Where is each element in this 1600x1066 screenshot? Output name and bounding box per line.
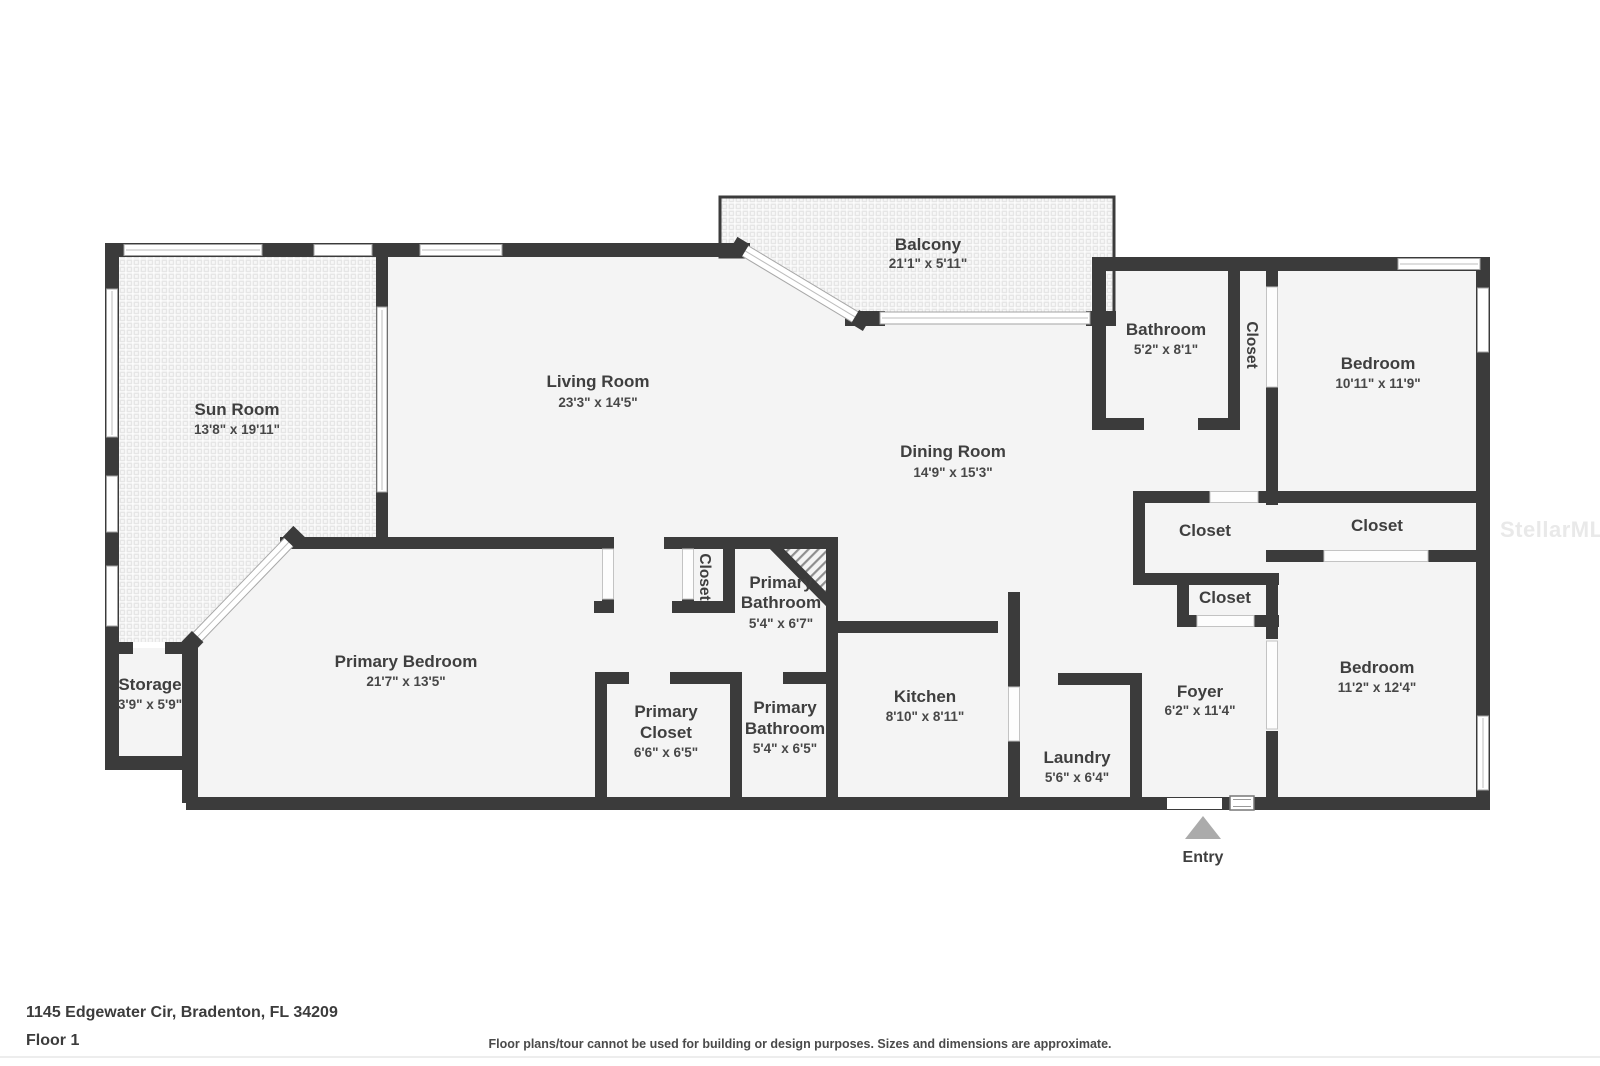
room-label-primary-bedroom: Primary Bedroom bbox=[335, 652, 478, 671]
room-dims-sun-room: 13'8" x 19'11" bbox=[194, 422, 280, 437]
room-label-primary-closet-line1: Primary bbox=[634, 702, 698, 721]
room-dims-bedroom-bottom: 11'2" x 12'4" bbox=[1338, 680, 1417, 695]
room-label-sun-room: Sun Room bbox=[195, 400, 280, 419]
room-label-closet-primary-hall: Closet bbox=[696, 553, 713, 600]
room-label-bedroom-bottom: Bedroom bbox=[1340, 658, 1415, 677]
room-label-bathroom: Bathroom bbox=[1126, 320, 1206, 339]
footer-divider bbox=[0, 1056, 1600, 1058]
room-dims-bedroom-top: 10'11" x 11'9" bbox=[1335, 376, 1420, 391]
room-label-storage: Storage bbox=[118, 675, 181, 694]
room-label-closet-hall-left: Closet bbox=[1179, 521, 1231, 540]
entry-label: Entry bbox=[1183, 849, 1224, 866]
room-dims-primary-bathroom-upper: 5'4" x 6'7" bbox=[749, 616, 813, 631]
room-dims-storage: 3'9" x 5'9" bbox=[118, 697, 182, 712]
room-dims-primary-closet: 6'6" x 6'5" bbox=[634, 745, 698, 760]
room-dims-dining-room: 14'9" x 15'3" bbox=[913, 465, 992, 480]
entry-arrow-icon bbox=[1185, 816, 1221, 839]
stellar-mls-watermark: StellarMLS bbox=[1500, 517, 1600, 543]
room-dims-laundry: 5'6" x 6'4" bbox=[1045, 770, 1109, 785]
room-dims-foyer: 6'2" x 11'4" bbox=[1164, 703, 1235, 718]
room-dims-bathroom: 5'2" x 8'1" bbox=[1134, 342, 1198, 357]
room-label-primary-bathroom-lower-line2: Bathroom bbox=[745, 719, 825, 738]
room-label-foyer: Foyer bbox=[1177, 682, 1224, 701]
room-label-closet-hall-small: Closet bbox=[1199, 588, 1251, 607]
room-label-closet-hall-bath: Closet bbox=[1243, 321, 1260, 368]
room-label-primary-closet-line2: Closet bbox=[640, 723, 692, 742]
room-dims-living-room: 23'3" x 14'5" bbox=[558, 395, 637, 410]
room-label-balcony: Balcony bbox=[895, 235, 962, 254]
room-label-dining-room: Dining Room bbox=[900, 442, 1006, 461]
floor-plan-drawing: Balcony 21'1" x 5'11" Sun Room 13'8" x 1… bbox=[0, 0, 1600, 1066]
disclaimer-text: Floor plans/tour cannot be used for buil… bbox=[0, 1037, 1600, 1051]
room-label-bedroom-top: Bedroom bbox=[1341, 354, 1416, 373]
room-label-closet-bedroom-top: Closet bbox=[1351, 516, 1403, 535]
room-dims-primary-bedroom: 21'7" x 13'5" bbox=[366, 674, 445, 689]
room-label-living-room: Living Room bbox=[547, 372, 650, 391]
entry-marker bbox=[1167, 796, 1254, 839]
room-label-primary-bathroom-upper-line2: Bathroom bbox=[741, 593, 821, 612]
room-label-laundry: Laundry bbox=[1043, 748, 1111, 767]
floor-plan-page: Balcony 21'1" x 5'11" Sun Room 13'8" x 1… bbox=[0, 0, 1600, 1066]
property-address: 1145 Edgewater Cir, Bradenton, FL 34209 bbox=[26, 1004, 338, 1022]
room-label-primary-bathroom-lower-line1: Primary bbox=[753, 698, 817, 717]
room-label-kitchen: Kitchen bbox=[894, 687, 956, 706]
room-label-primary-bathroom-upper-line1: Primary bbox=[749, 573, 813, 592]
room-dims-kitchen: 8'10" x 8'11" bbox=[886, 709, 965, 724]
room-dims-balcony: 21'1" x 5'11" bbox=[889, 256, 968, 271]
room-dims-primary-bathroom-lower: 5'4" x 6'5" bbox=[753, 741, 817, 756]
